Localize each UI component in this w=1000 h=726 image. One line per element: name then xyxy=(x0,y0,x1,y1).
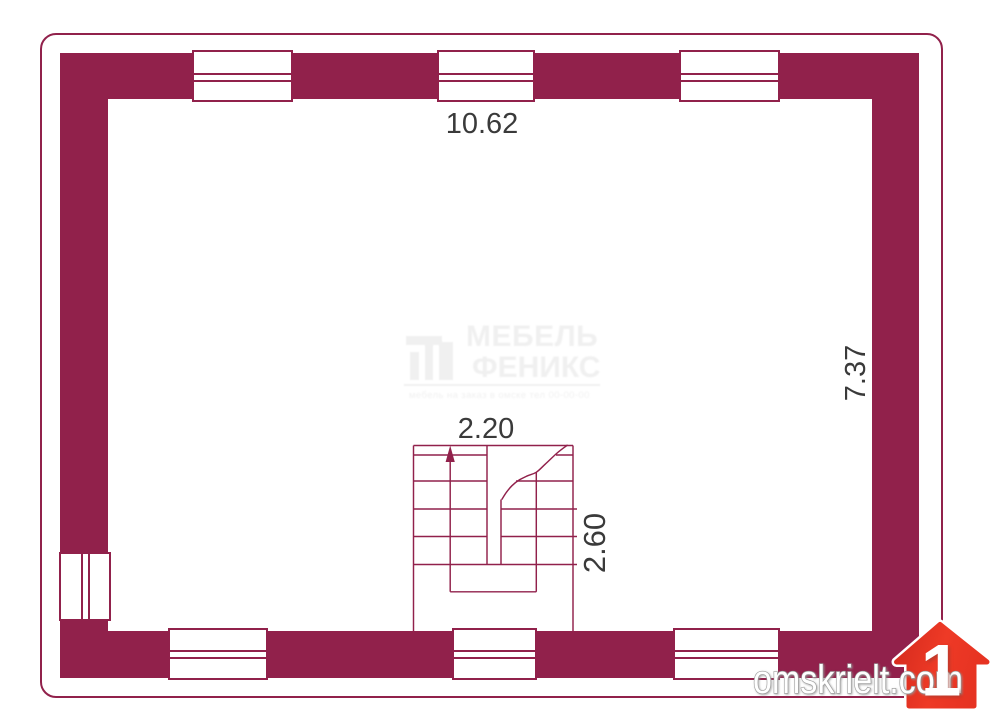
svg-text:1: 1 xyxy=(921,631,962,712)
